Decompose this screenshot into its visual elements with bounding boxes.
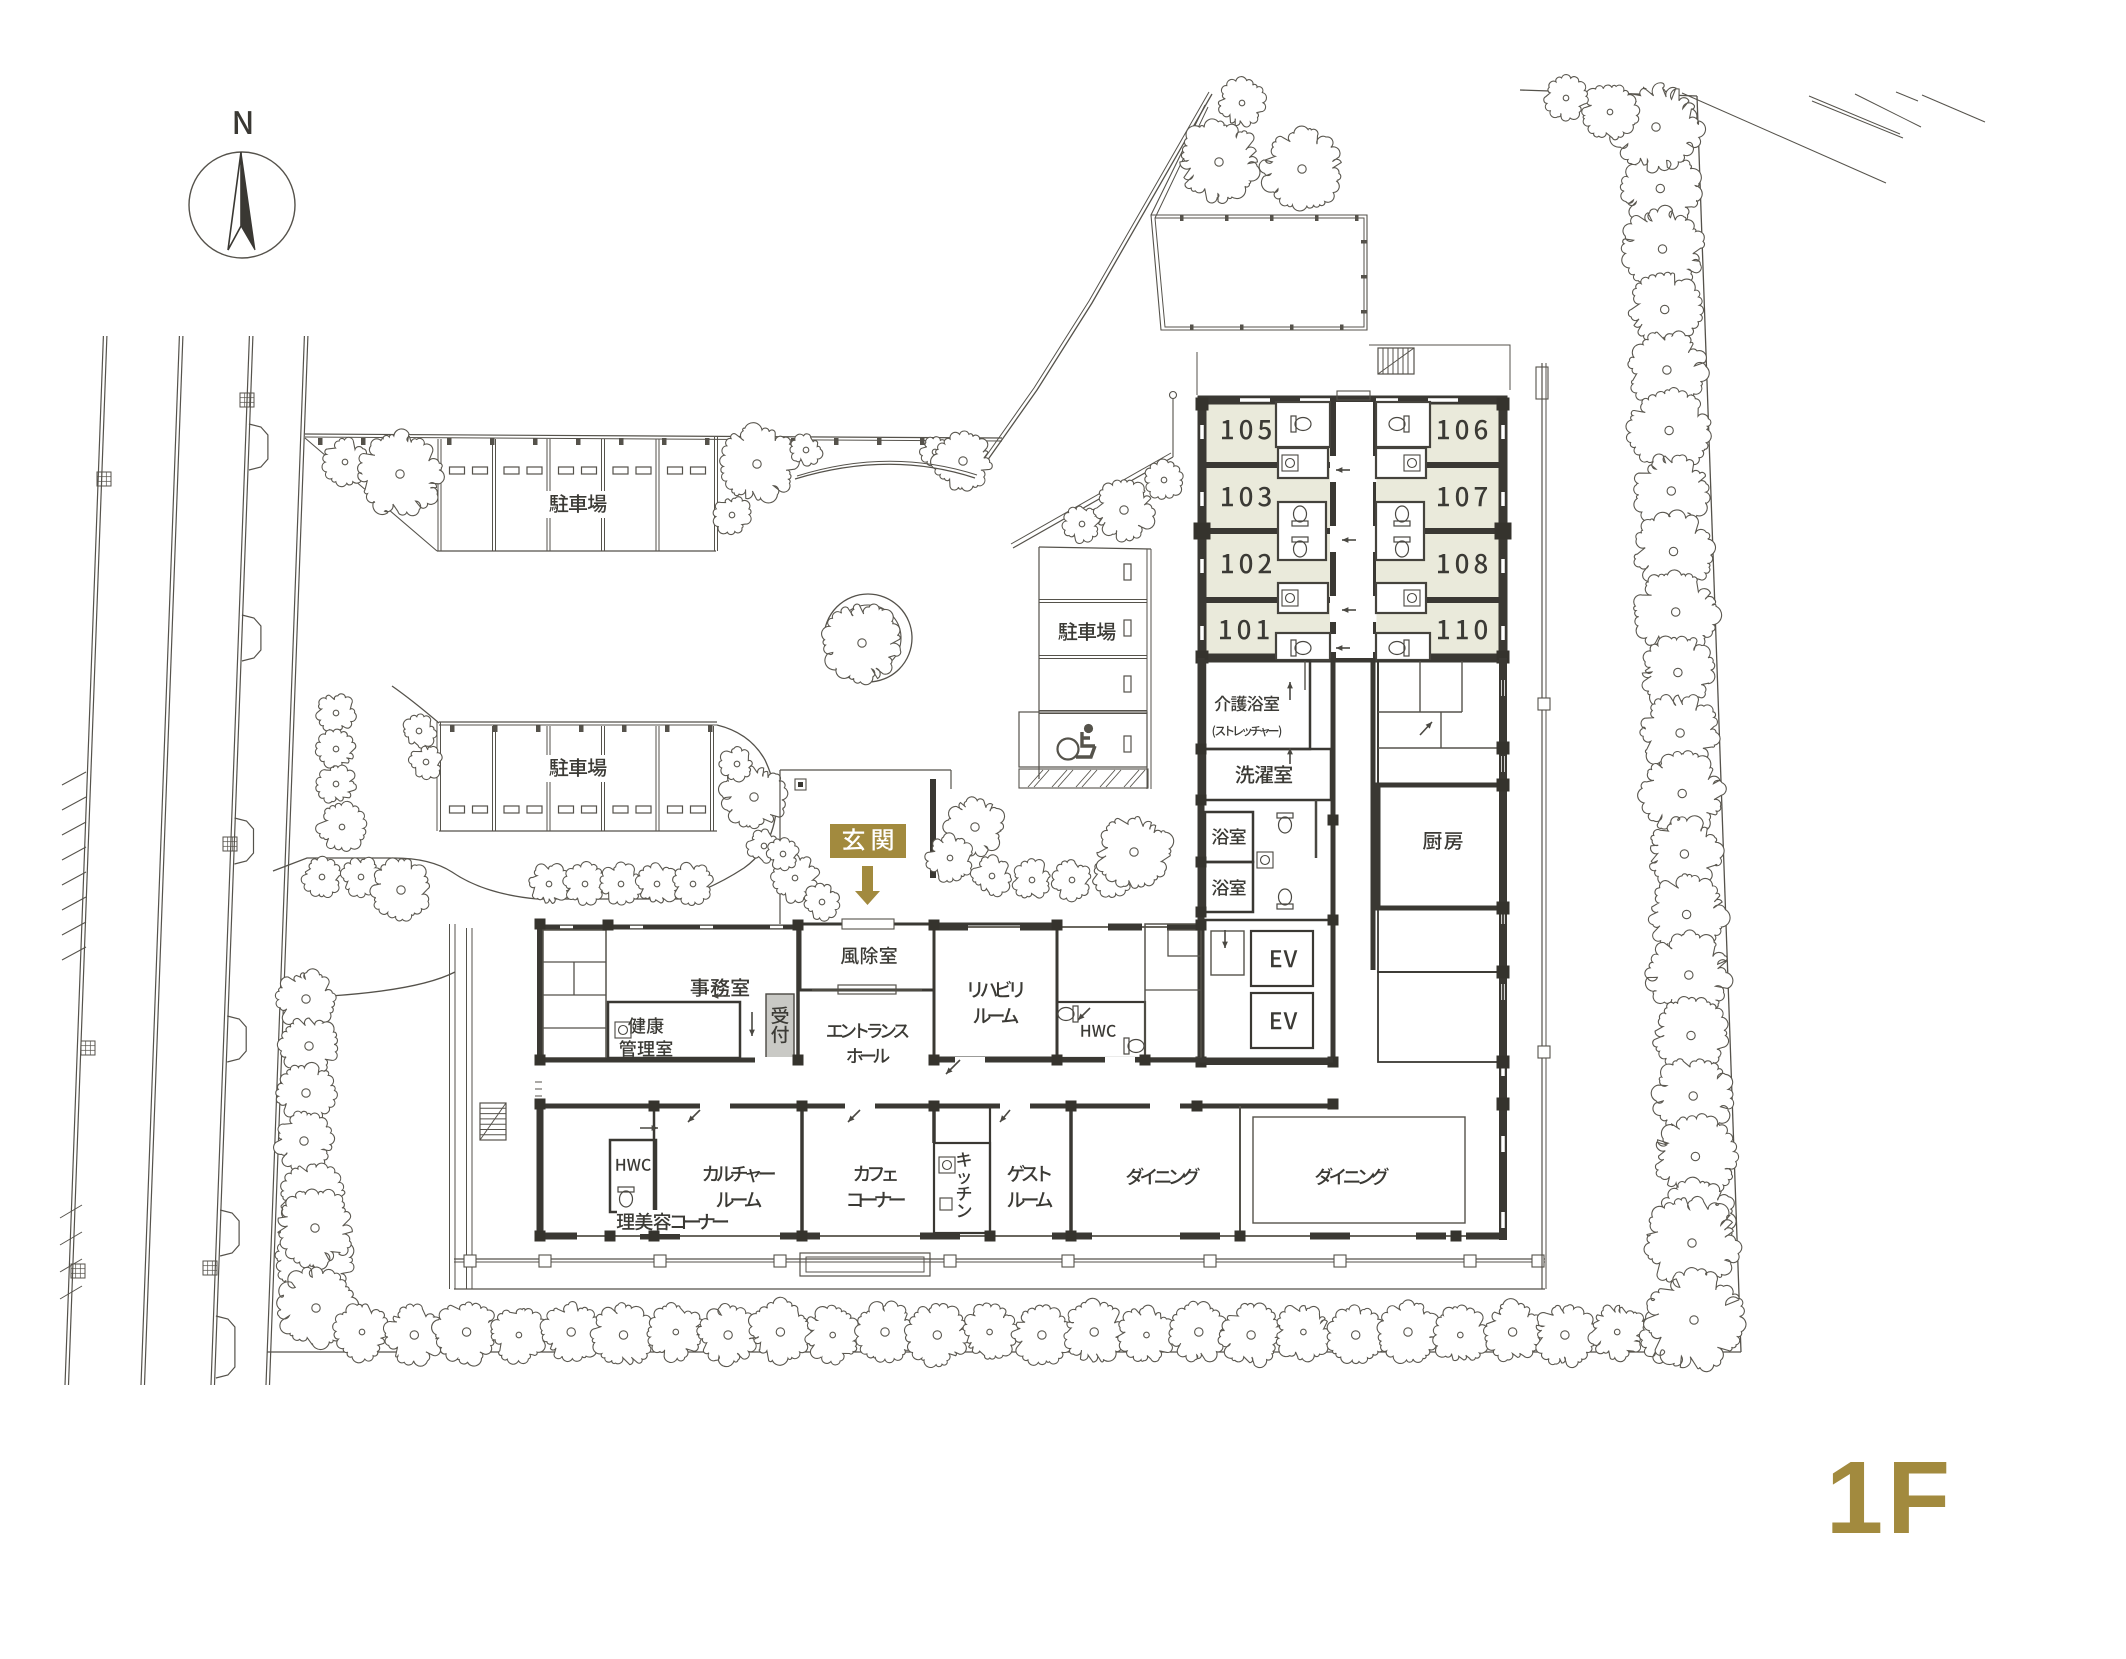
svg-text:1F: 1F (1826, 1440, 1954, 1555)
